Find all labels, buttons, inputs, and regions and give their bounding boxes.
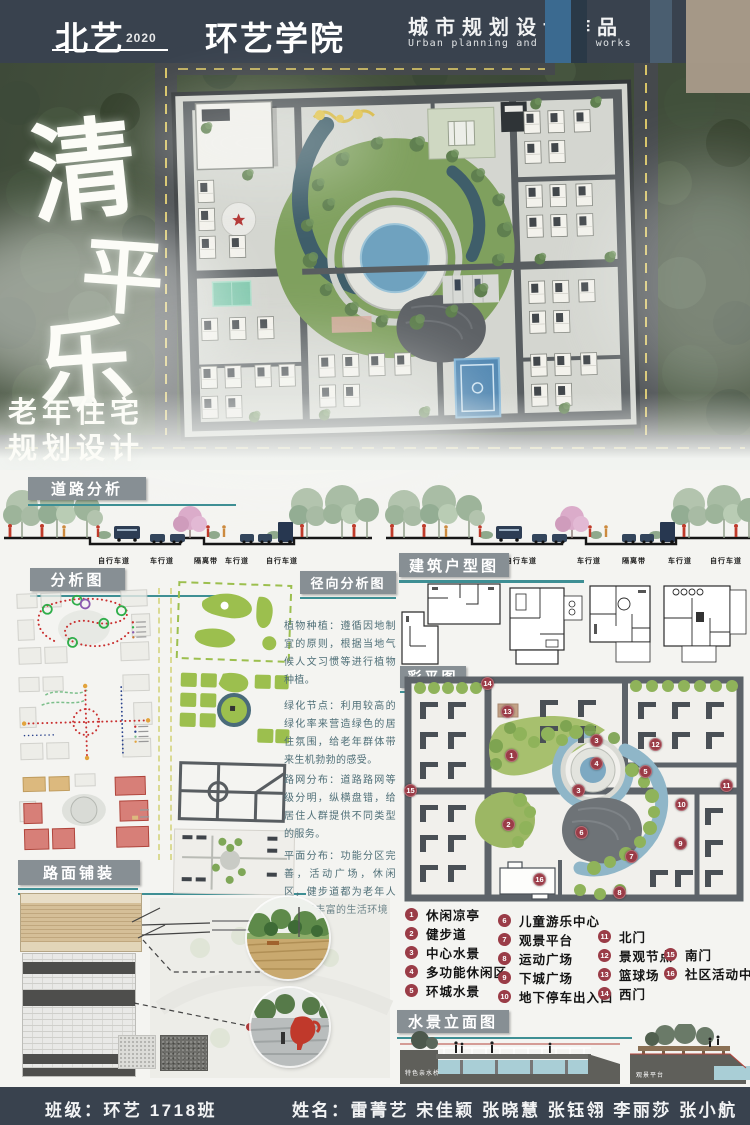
underline: [28, 504, 236, 506]
note-planting: 植物种植：遵循因地制宜的原则，根据当地气候人文习惯等进行植物种植。: [284, 618, 396, 690]
legend-item: 6儿童游乐中心: [498, 914, 614, 927]
legend-num: 10: [498, 990, 511, 1003]
legend-label: 北门: [619, 927, 646, 946]
plan-marker: 5: [639, 765, 652, 778]
analysis-diagram-function: [15, 768, 157, 860]
section-label-pavement: 路面铺装: [18, 860, 140, 885]
plan-marker: 3: [572, 784, 585, 797]
header-title-cn: 城市规划设计作品: [408, 11, 624, 40]
master-plan: [173, 82, 638, 440]
lane-label: 车行道: [215, 556, 259, 566]
footer-names: 姓名：雷菁艺 宋佳颖 张晓慧 张钰翎 李丽莎 张小航: [292, 1096, 738, 1121]
lane-label: 自行车道: [260, 556, 304, 566]
legend-item: 9下城广场: [498, 971, 614, 984]
header-stripe-navy: [571, 0, 587, 63]
legend-label: 南门: [685, 945, 712, 964]
floor-plan-3: [588, 584, 656, 664]
legend-label: 健步道: [426, 924, 467, 943]
lane-label: 隔离带: [612, 556, 656, 566]
plan-marker: 6: [575, 826, 588, 839]
floor-plan-4: [662, 584, 748, 664]
legend-column-1: 1休闲凉亭 2健步道 3中心水景 4多功能休闲区 5环城水景: [405, 908, 507, 997]
note-greenery: 绿化节点：利用较高的绿化率来营造绿色的居住氛围，给老年群体带来生机勃勃的感受。: [284, 698, 396, 770]
plan-marker: 3: [590, 734, 603, 747]
legend-label: 社区活动中心: [685, 964, 750, 983]
legend-num: 3: [405, 946, 418, 959]
legend-label: 篮球场: [619, 965, 660, 984]
legend-item: 16社区活动中心: [664, 967, 750, 980]
brand-year: 2020: [126, 31, 157, 45]
legend-item: 12景观节点: [598, 949, 673, 962]
lane-label: 车行道: [658, 556, 702, 566]
photo-park-path: [247, 897, 329, 979]
brand-underline: [52, 49, 168, 51]
legend-item: 8运动广场: [498, 952, 614, 965]
plan-marker: 10: [675, 798, 688, 811]
legend-label: 西门: [619, 984, 646, 1003]
analysis-diagram-roadnet: [15, 670, 157, 766]
header-corner-tan: [686, 0, 750, 63]
college-name: 环艺学院: [205, 12, 345, 60]
header-stripe-steel: [650, 0, 672, 63]
plan-marker: 8: [613, 886, 626, 899]
legend-label: 观景平台: [519, 930, 573, 949]
legend-num: 12: [598, 949, 611, 962]
legend-num: 5: [405, 984, 418, 997]
legend-item: 2健步道: [405, 927, 507, 940]
legend-label: 环城水景: [426, 981, 480, 1000]
floor-plan-1: [400, 582, 504, 666]
legend-item: 3中心水景: [405, 946, 507, 959]
legend-item: 10地下停车出入口: [498, 990, 614, 1003]
legend-num: 14: [598, 987, 611, 1000]
tan-corner: [686, 63, 750, 93]
footer-class: 班级：环艺 1718班: [45, 1096, 217, 1121]
plan-marker: 12: [649, 738, 662, 751]
legend-num: 8: [498, 952, 511, 965]
legend-column-2: 6儿童游乐中心 7观景平台 8运动广场 9下城广场 10地下停车出入口: [498, 914, 614, 1003]
radial-diagram-roads: [171, 756, 293, 829]
pavement-leader-lines: [0, 888, 400, 1088]
lane-label: 车行道: [140, 556, 184, 566]
analysis-diagram-circulation: [13, 586, 156, 671]
legend-item: 7观景平台: [498, 933, 614, 946]
header-title-en: Urban planning and design works: [408, 38, 632, 49]
plan-marker: 11: [720, 779, 733, 792]
section-label-floorplan: 建筑户型图: [399, 553, 509, 577]
legend-num: 9: [498, 971, 511, 984]
poster: 北艺 2020 环艺学院 城市规划设计作品 Urban planning and…: [0, 0, 750, 1125]
legend-item: 15南门: [664, 948, 750, 961]
footer-bar: 班级：环艺 1718班 姓名：雷菁艺 宋佳颖 张晓慧 张钰翎 李丽莎 张小航: [0, 1087, 750, 1125]
plan-marker: 13: [501, 705, 514, 718]
brand-logo: 北艺: [55, 12, 125, 60]
subtitle-line-2: 规划设计: [8, 425, 144, 467]
legend-item: 13篮球场: [598, 968, 673, 981]
lane-label: 自行车道: [704, 556, 748, 566]
hero-aerial: 清 平 乐 老年住宅 规划设计: [0, 63, 750, 470]
plan-marker: 14: [481, 677, 494, 690]
header-bar: 北艺 2020 环艺学院 城市规划设计作品 Urban planning and…: [0, 0, 750, 63]
legend-label: 多功能休闲区: [426, 962, 507, 981]
legend-num: 16: [664, 967, 677, 980]
legend-label: 中心水景: [426, 943, 480, 962]
header-stripe-blue: [545, 0, 571, 63]
plan-marker: 1: [505, 749, 518, 762]
plan-marker: 4: [590, 757, 603, 770]
section-label-road-analysis: 道路分析: [28, 477, 146, 500]
legend-num: 6: [498, 914, 511, 927]
legend-label: 休闲凉亭: [426, 905, 480, 924]
legend-label: 儿童游乐中心: [519, 911, 600, 930]
note-roadnet: 路网分布：道路路网等级分明，纵横盘错，给居住人群提供不同类型的服务。: [284, 772, 396, 844]
plan-marker: 9: [674, 837, 687, 850]
radial-diagram-greenery: [173, 666, 295, 754]
legend-num: 15: [664, 948, 677, 961]
plan-marker: 16: [533, 873, 546, 886]
legend-item: 4多功能休闲区: [405, 965, 507, 978]
legend-column-4: 15南门 16社区活动中心: [664, 948, 750, 980]
dashed-road-line: [158, 588, 160, 860]
elevation-caption-bridge: 特色亲水桥: [405, 1068, 440, 1077]
legend-label: 下城广场: [519, 968, 573, 987]
legend-num: 4: [405, 965, 418, 978]
legend-num: 2: [405, 927, 418, 940]
lane-label: 车行道: [567, 556, 611, 566]
legend-column-3: 11北门 12景观节点 13篮球场 14西门: [598, 930, 673, 1000]
legend-num: 11: [598, 930, 611, 943]
radial-diagram-planting: [171, 578, 299, 667]
legend-item: 1休闲凉亭: [405, 908, 507, 921]
lane-label: 自行车道: [92, 556, 136, 566]
legend-num: 13: [598, 968, 611, 981]
elevation-caption-platform: 观景平台: [636, 1070, 664, 1079]
underline: [300, 597, 396, 599]
plan-marker: 15: [404, 784, 417, 797]
legend-label: 运动广场: [519, 949, 573, 968]
plan-marker: 2: [502, 818, 515, 831]
legend-item: 14西门: [598, 987, 673, 1000]
section-label-radial: 径向分析图: [300, 571, 396, 594]
legend-num: 1: [405, 908, 418, 921]
plan-marker: 7: [625, 850, 638, 863]
legend-item: 11北门: [598, 930, 673, 943]
floor-plan-2: [508, 582, 586, 666]
legend-item: 5环城水景: [405, 984, 507, 997]
photo-elephant-sculpture-plaza: [251, 988, 329, 1066]
legend-num: 7: [498, 933, 511, 946]
